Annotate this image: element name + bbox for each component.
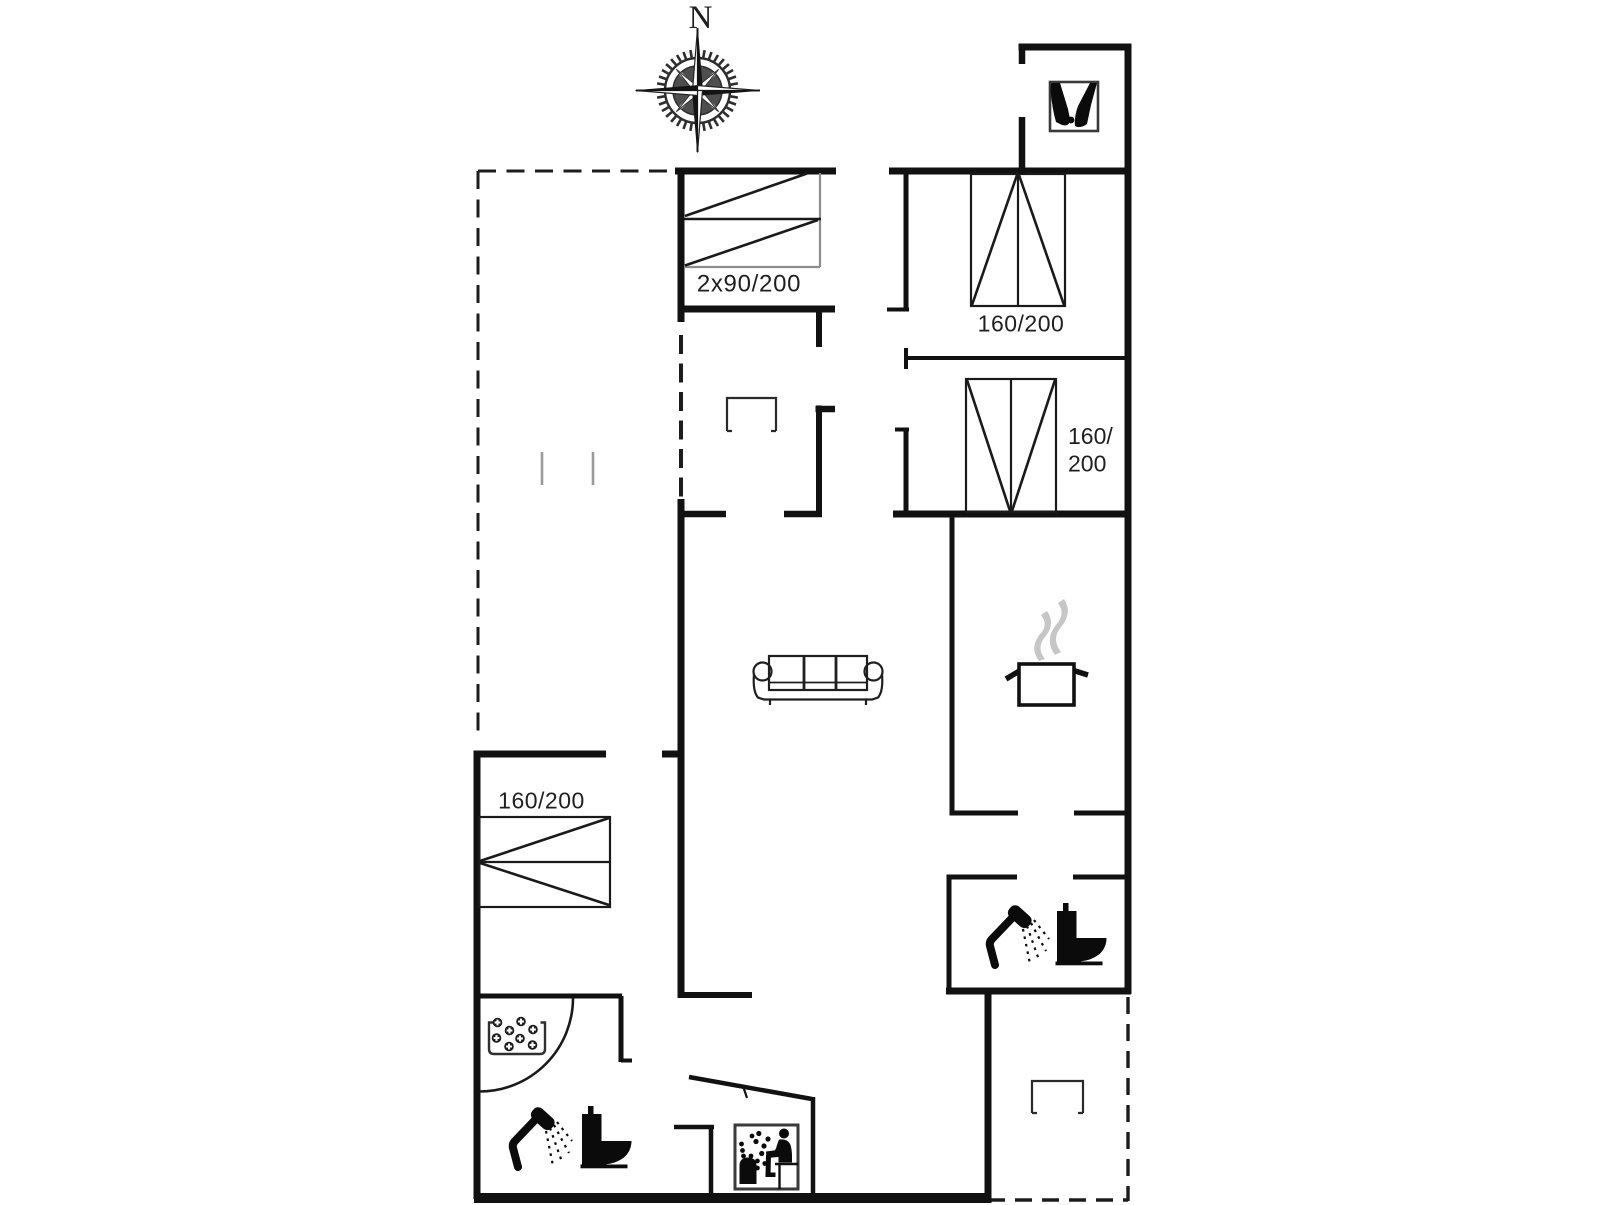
svg-text:160/: 160/ bbox=[1068, 423, 1113, 449]
svg-text:200: 200 bbox=[1068, 451, 1106, 477]
svg-text:160/200: 160/200 bbox=[498, 788, 585, 814]
svg-text:N: N bbox=[689, 0, 713, 36]
svg-text:160/200: 160/200 bbox=[978, 311, 1065, 337]
svg-text:2x90/200: 2x90/200 bbox=[697, 271, 801, 298]
